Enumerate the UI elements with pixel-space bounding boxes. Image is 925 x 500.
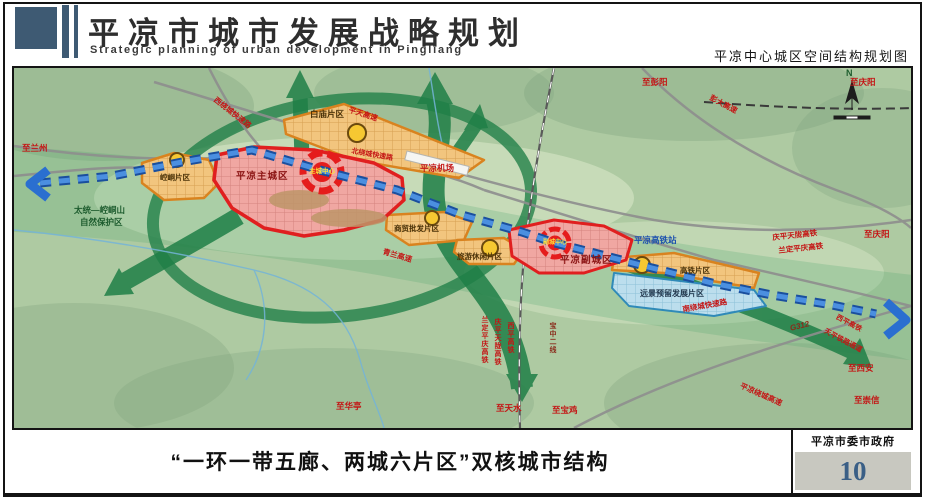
- label-hsr-station: 平凉高铁站: [634, 236, 677, 246]
- planning-map: N 至兰州 西绕城快速路 平天高速 北绕城快速路 至彭阳 彭大高速 至庆阳 白庙…: [12, 66, 913, 430]
- label-sub-center: 副城中心: [537, 240, 573, 247]
- label-landing-pingqing-hsr-vertical: 兰定平庆高铁: [480, 316, 488, 364]
- page-number-box: 10: [795, 452, 911, 490]
- header-accent-bar-thin: [74, 5, 78, 58]
- label-trade-district: 商贸批发片区: [394, 225, 439, 234]
- label-qingping-tianlong-hsr-vertical: 庆平天陇高铁: [493, 318, 501, 366]
- label-to-qingyang-right: 至庆阳: [864, 230, 890, 240]
- label-nature-reserve-line1: 太统—崆峒山: [74, 206, 125, 216]
- label-reserved-district: 远景预留发展片区: [640, 289, 704, 298]
- label-to-huating: 至华亭: [336, 402, 362, 412]
- label-main-city: 平凉主城区: [236, 172, 289, 183]
- label-to-chongxin: 至崇信: [854, 396, 880, 406]
- label-main-center: 主城中心: [302, 168, 342, 175]
- label-to-lanzhou: 至兰州: [22, 144, 48, 154]
- label-to-xian: 至西安: [848, 364, 874, 374]
- label-xiping-hsr-vertical: 西平高铁: [506, 322, 514, 354]
- page-subtitle-english: Strategic planning of urban development …: [90, 44, 463, 56]
- label-kongtong-district: 崆峒片区: [160, 174, 190, 183]
- label-nature-reserve-line2: 自然保护区: [80, 218, 123, 228]
- label-leisure-district: 旅游休闲片区: [457, 253, 502, 262]
- label-airport: 平凉机场: [420, 164, 454, 174]
- label-baimiao-district: 白庙片区: [310, 110, 344, 120]
- label-hsr-district: 高铁片区: [680, 267, 710, 276]
- scale-bar: [834, 116, 870, 119]
- map-caption: 平凉中心城区空间结构规划图: [714, 46, 909, 65]
- organization-label: 平凉市委市政府: [793, 433, 913, 449]
- structure-caption: “一环一带五廊、两城六片区”双核城市结构: [10, 446, 770, 476]
- logo-square: [15, 7, 57, 49]
- header-accent-bar: [62, 5, 69, 58]
- page-number: 10: [840, 456, 867, 487]
- label-sub-city: 平凉副城区: [560, 256, 613, 267]
- label-to-qingyang-top: 至庆阳: [850, 78, 876, 88]
- label-to-tianshui: 至天水: [496, 404, 522, 414]
- label-to-pengyang: 至彭阳: [642, 78, 668, 88]
- label-baozhong-line2: 宝中二线: [548, 322, 556, 354]
- map-graphic: [14, 68, 911, 428]
- label-to-baoji: 至宝鸡: [552, 406, 578, 416]
- planning-document-page: 平凉市城市发展战略规划 Strategic planning of urban …: [0, 0, 925, 500]
